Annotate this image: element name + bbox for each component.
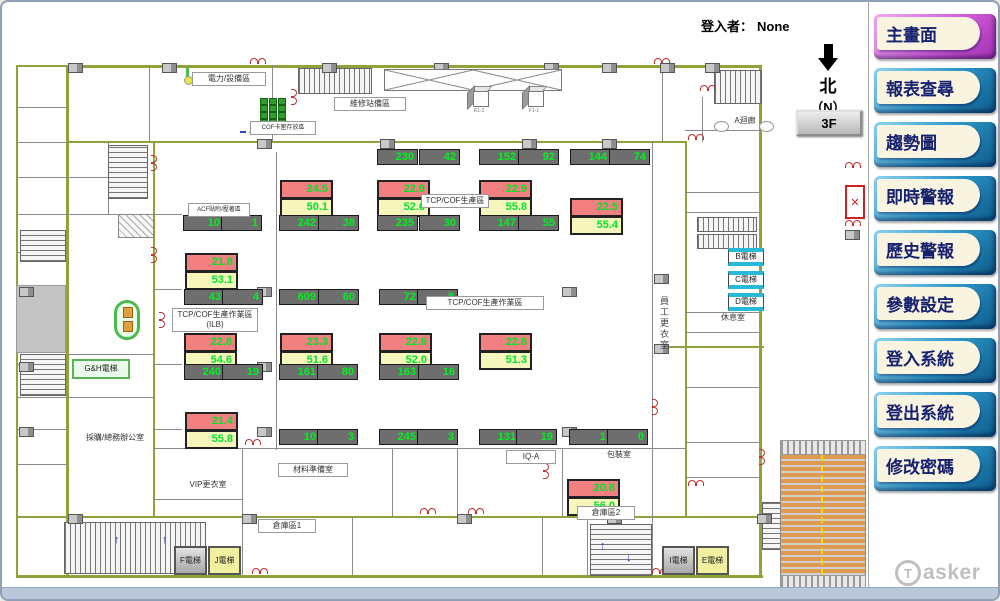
sensor-chip	[562, 287, 577, 297]
door-leaf	[853, 220, 861, 226]
door-leaf	[291, 97, 297, 105]
door-leaf	[759, 457, 765, 465]
cof-rack-cell	[269, 105, 277, 112]
door-arc-icon	[151, 247, 157, 263]
partition-line	[17, 397, 67, 398]
elevator-label: I電梯	[662, 546, 695, 575]
door-leaf	[253, 439, 261, 445]
fan-unit-icon: ✕	[845, 185, 865, 219]
sensor-chip	[19, 427, 34, 437]
nav-button-label: 報表查尋	[877, 71, 980, 104]
room-label-vertical: 員工更衣室	[658, 296, 671, 351]
door-arc-icon	[700, 85, 716, 91]
counter-value: 230	[377, 149, 418, 165]
door-leaf	[252, 568, 260, 574]
sensor-chip	[757, 514, 772, 524]
sensor-chip	[242, 514, 257, 524]
partition-line	[542, 517, 543, 575]
stairs-arrow-icon: ↑	[600, 540, 606, 552]
wall-segment	[67, 141, 686, 143]
floorplan-canvas: ✕↑↑↑↓24.550.122.952.622.955.822.555.421.…	[2, 2, 868, 601]
door-leaf	[845, 162, 853, 168]
partition-line	[392, 448, 393, 517]
partition-line	[154, 289, 182, 290]
counter-value: 131	[479, 429, 520, 445]
nav-button-label: 即時警報	[877, 179, 980, 212]
dock-area	[780, 454, 866, 576]
counter-value: 161	[279, 364, 320, 380]
room-label: COF卡匣存放區	[250, 121, 316, 135]
sensor-temp-value: 24.5	[280, 180, 333, 199]
door-leaf	[652, 407, 658, 415]
equipment-cube-icon: R1-2	[466, 84, 492, 114]
stairs	[714, 70, 762, 104]
door-arc-icon	[159, 312, 165, 328]
partition-line	[17, 177, 67, 178]
partition-line	[562, 448, 563, 517]
elevator-label: C電梯	[728, 271, 764, 289]
nav-button-trend-chart[interactable]: 趨勢圖	[874, 122, 996, 167]
nav-button-login-system[interactable]: 登入系統	[874, 338, 996, 383]
room-label: TCP/COF生產區	[421, 194, 489, 208]
nav-button-parameter-settings[interactable]: 參數設定	[874, 284, 996, 329]
door-leaf	[428, 508, 436, 514]
nav-button-label: 趨勢圖	[877, 125, 980, 158]
counter-value: 19	[222, 364, 263, 380]
door-arc-icon	[688, 134, 704, 140]
nav-button-report-query[interactable]: 報表查尋	[874, 68, 996, 113]
partition-line	[154, 214, 182, 215]
counter-value: 609	[279, 289, 320, 305]
counter-value: 3	[317, 429, 358, 445]
counter-value: 60	[318, 289, 359, 305]
door-leaf	[543, 471, 549, 479]
counter-value: 3	[417, 429, 458, 445]
sensor-chip	[845, 230, 860, 240]
nav-button-label: 修改密碼	[877, 449, 980, 482]
wall-segment	[16, 516, 763, 518]
door-leaf	[245, 439, 253, 445]
partition-line	[352, 517, 353, 575]
counter-value: 0	[607, 429, 648, 445]
pillar-oval	[714, 121, 729, 132]
counter-value: 4	[222, 289, 263, 305]
cof-rack-cell	[269, 98, 277, 105]
room-label: TCP/COF生產作業區	[426, 296, 544, 310]
sensor-chip	[522, 139, 537, 149]
sensor-humidity-value: 53.1	[185, 271, 238, 290]
counter-value: 38	[318, 215, 359, 231]
nav-button-change-password[interactable]: 修改密碼	[874, 446, 996, 491]
door-arc-icon	[151, 155, 157, 171]
door-arc-icon	[291, 89, 297, 105]
elevator-label: D電梯	[728, 293, 764, 311]
sensor-humidity-value: 55.4	[570, 216, 623, 235]
counter-value: 42	[419, 149, 460, 165]
sensor-humidity-value: 51.3	[479, 351, 532, 370]
nav-button-main-screen[interactable]: 主畫面	[874, 14, 996, 59]
door-leaf	[759, 449, 765, 457]
partition-line	[154, 364, 182, 365]
sensor-chip	[654, 274, 669, 284]
stairs-arrow-icon: ↓	[626, 552, 632, 564]
nav-button-history-alarm[interactable]: 歷史警報	[874, 230, 996, 275]
sensor-temp-value: 22.5	[570, 198, 623, 217]
sensor-chip	[602, 139, 617, 149]
sensor-temp-value: 21.8	[185, 253, 238, 272]
sensor-temp-value: 23.3	[280, 333, 333, 352]
counter-value: 55	[518, 215, 559, 231]
sensor-chip	[162, 63, 177, 73]
counter-value: 240	[184, 364, 225, 380]
partition-line	[662, 65, 663, 142]
partition-line	[652, 141, 653, 517]
counter-value: 80	[317, 364, 358, 380]
cof-rack-cell	[260, 112, 268, 119]
counter-value: 10	[183, 215, 224, 231]
counter-value: 10	[279, 429, 320, 445]
room-label: 電力/設備區	[192, 72, 266, 86]
sensor-chip	[602, 63, 617, 73]
sensor-chip	[660, 63, 675, 73]
door-leaf	[543, 463, 549, 471]
door-arc-icon	[652, 399, 658, 415]
partition-line	[685, 212, 760, 213]
counter-value: 163	[379, 364, 420, 380]
room-label: 採購/總務辦公室	[76, 432, 154, 444]
door-leaf	[151, 163, 157, 171]
door-leaf	[258, 58, 266, 64]
door-arc-icon	[845, 162, 861, 168]
partition-line	[276, 152, 277, 450]
door-leaf	[159, 320, 165, 328]
partition-line	[685, 477, 760, 478]
marker-pin-icon	[186, 68, 189, 78]
door-leaf	[652, 399, 658, 407]
partition-line	[685, 332, 760, 333]
sensor-chip	[457, 514, 472, 524]
door-leaf	[250, 58, 258, 64]
door-arc-icon	[688, 480, 704, 486]
nav-button-label: 歷史警報	[877, 233, 980, 266]
partition-line	[587, 517, 588, 575]
room-label: ACF貼附/壓著區	[188, 203, 250, 217]
elevator-label: J電梯	[208, 546, 241, 575]
elevator-label: G&H電梯	[72, 359, 130, 379]
door-leaf	[696, 480, 704, 486]
door-leaf	[696, 134, 704, 140]
stairs-arrow-icon: ↑	[162, 534, 168, 546]
counter-value: 144	[570, 149, 611, 165]
nav-button-label: 主畫面	[877, 17, 980, 50]
counter-value: 30	[419, 215, 460, 231]
sensor-temp-value: 22.8	[184, 333, 237, 352]
dock-hatch-band	[780, 440, 866, 455]
equipment-cube-icon: F1-1	[521, 84, 547, 114]
partition-line	[457, 448, 458, 517]
sensor-chip	[322, 63, 337, 73]
door-leaf	[291, 89, 297, 97]
dock-centerline	[821, 455, 823, 575]
tasker-logo: T asker	[895, 560, 980, 586]
counter-value: 92	[518, 149, 559, 165]
door-arc-icon	[543, 463, 549, 479]
cof-rack-cell	[260, 105, 268, 112]
sensor-temp-value: 22.8	[479, 333, 532, 352]
door-leaf	[260, 568, 268, 574]
stairs	[697, 217, 757, 232]
nav-button-label: 登出系統	[877, 395, 980, 428]
partition-line	[652, 517, 653, 575]
partition-line	[67, 354, 154, 355]
nav-button-logout-system[interactable]: 登出系統	[874, 392, 996, 437]
stairs	[118, 214, 154, 238]
stairs	[108, 145, 148, 199]
partition-line	[17, 142, 67, 143]
escalator-icon	[114, 300, 140, 340]
tasker-logo-text: asker	[923, 561, 980, 585]
nav-button-label: 參數設定	[877, 287, 980, 320]
door-leaf	[845, 220, 853, 226]
door-leaf	[652, 568, 660, 574]
partition-line	[242, 448, 243, 517]
partition-line	[685, 192, 760, 193]
stairs-arrow-icon: ↑	[114, 534, 120, 546]
room-label: 休息室	[712, 312, 754, 324]
cof-rack-cell	[269, 112, 277, 119]
sensor-temp-value: 20.8	[567, 479, 620, 498]
door-leaf	[853, 162, 861, 168]
door-leaf	[151, 247, 157, 255]
counter-value: 242	[279, 215, 320, 231]
sensor-humidity-value: 55.8	[185, 430, 238, 449]
door-leaf	[700, 85, 708, 91]
stairs	[762, 502, 782, 550]
room-label: IQ-A	[506, 450, 556, 464]
room-label: VIP更衣室	[178, 479, 238, 491]
elevator-label: F電梯	[174, 546, 207, 575]
partition-line	[685, 442, 760, 443]
sensor-chip	[19, 287, 34, 297]
wall-segment	[685, 141, 687, 518]
door-arc-icon	[250, 58, 266, 64]
sensor-chip	[380, 139, 395, 149]
elevator-label: B電梯	[728, 248, 764, 266]
door-arc-icon	[420, 508, 436, 514]
door-leaf	[688, 480, 696, 486]
sensor-chip	[68, 63, 83, 73]
scada-window: 登入者：None 北 （N） 3F ✕↑↑↑↓24.550.122.952.62…	[0, 0, 1000, 601]
counter-value: 152	[479, 149, 520, 165]
nav-button-label: 登入系統	[877, 341, 980, 374]
partition-line	[17, 107, 67, 108]
stairs	[20, 230, 66, 262]
room-label: TCP/COF生產作業區 (ILB)	[172, 308, 258, 332]
door-arc-icon	[252, 568, 268, 574]
stairs	[697, 234, 757, 249]
sensor-chip	[705, 63, 720, 73]
partition-line	[67, 177, 108, 178]
door-leaf	[688, 134, 696, 140]
door-leaf	[708, 85, 716, 91]
door-arc-icon	[845, 220, 861, 226]
partition-line	[154, 429, 182, 430]
room-label: 倉庫區1	[258, 519, 316, 533]
door-arc-icon	[245, 439, 261, 445]
partition-line	[242, 517, 243, 575]
window-bottom-bar	[2, 587, 998, 599]
door-leaf	[420, 508, 428, 514]
counter-value: 16	[418, 364, 459, 380]
sensor-chip	[257, 427, 272, 437]
room-label: A迴廊	[728, 115, 762, 127]
tasker-logo-gear-icon: T	[895, 560, 921, 586]
counter-value: 147	[479, 215, 520, 231]
partition-line	[149, 65, 150, 142]
cof-rack-cell	[278, 105, 286, 112]
counter-value: 72	[379, 289, 420, 305]
elevator-label: E電梯	[696, 546, 729, 575]
door-leaf	[151, 155, 157, 163]
sensor-chip	[19, 362, 34, 372]
partition-line	[17, 464, 67, 465]
cof-rack-cell	[278, 112, 286, 119]
sidebar-divider	[868, 2, 869, 601]
counter-value: 1	[569, 429, 610, 445]
door-arc-icon	[759, 449, 765, 465]
cube-label: F1-1	[521, 108, 547, 114]
door-leaf	[159, 312, 165, 320]
room-label: 倉庫區2	[577, 506, 635, 520]
sensor-chip	[68, 514, 83, 524]
room-label: 材料準備室	[278, 463, 348, 477]
sensor-temp-value: 21.4	[185, 412, 238, 431]
partition-line	[154, 499, 242, 500]
counter-value: 1	[221, 215, 262, 231]
cube-label: R1-2	[466, 108, 492, 114]
room-label: 包裝室	[592, 449, 646, 461]
nav-button-realtime-alarm[interactable]: 即時警報	[874, 176, 996, 221]
sensor-temp-value: 22.6	[379, 333, 432, 352]
partition-line	[17, 214, 67, 215]
room-label: 維修站備區	[334, 97, 406, 111]
sensor-chip	[257, 139, 272, 149]
wall-segment	[153, 141, 155, 518]
cof-rack-cell	[278, 98, 286, 105]
partition-line	[67, 397, 154, 398]
counter-value: 43	[184, 289, 225, 305]
counter-value: 74	[609, 149, 650, 165]
counter-value: 19	[516, 429, 557, 445]
counter-value: 235	[377, 215, 418, 231]
door-leaf	[476, 508, 484, 514]
partition-line	[685, 387, 760, 388]
wall-segment	[16, 65, 68, 67]
door-leaf	[151, 255, 157, 263]
counter-value: 245	[379, 429, 420, 445]
stairs	[20, 354, 66, 396]
cof-rack-cell	[260, 98, 268, 105]
